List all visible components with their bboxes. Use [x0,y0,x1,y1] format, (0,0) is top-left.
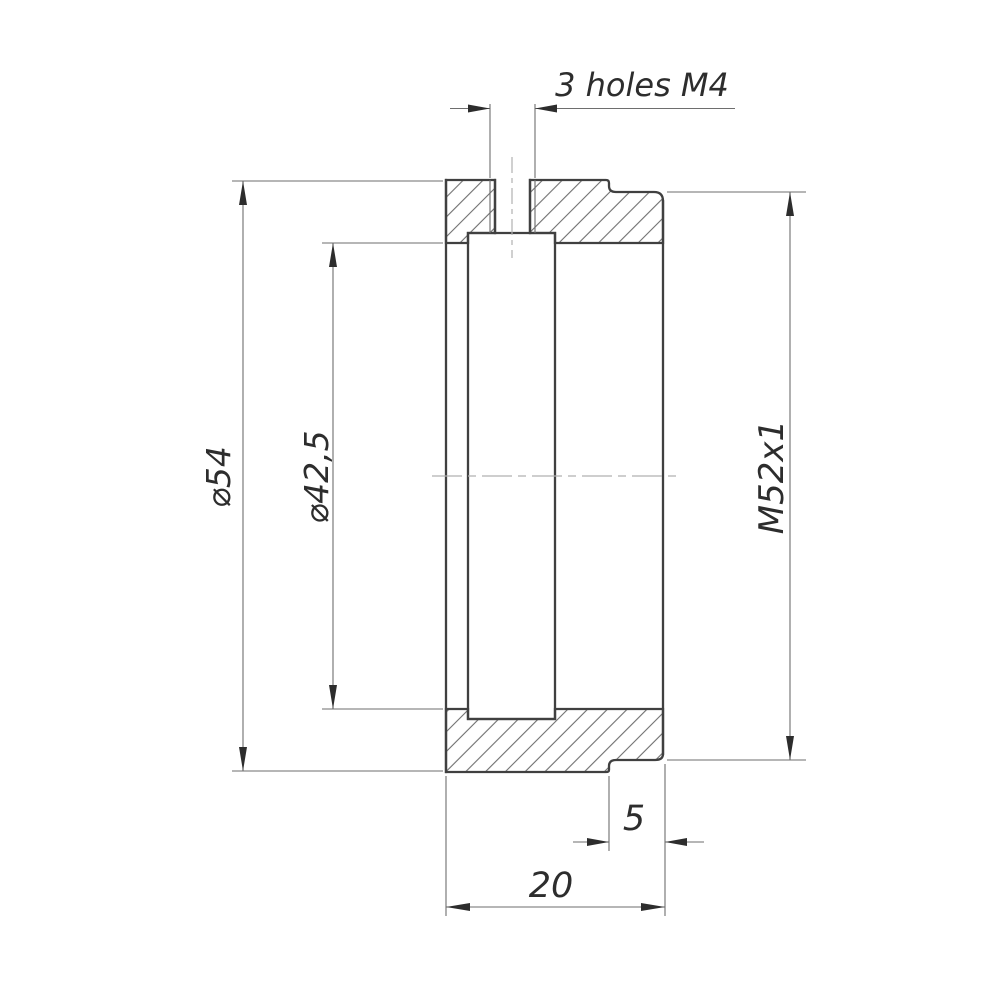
dimension-bore-diameter: ⌀42,5 [297,243,443,709]
arrowhead-left [468,105,490,113]
arrowhead-top [329,243,337,267]
drawing-sheet: 3 holes M4 ⌀54 ⌀42,5 M52x1 5 2 [0,0,1000,1000]
arrowhead-top [786,192,794,216]
dimension-overall-length: 20 [446,776,665,916]
arrowhead-bottom [239,747,247,771]
dimension-thread-m52x1: M52x1 [667,192,806,760]
arrowhead-bottom [786,736,794,760]
arrowhead-top [239,181,247,205]
arrowhead-bottom [329,685,337,709]
arrowhead-right [641,903,665,911]
extension-lines [609,764,665,916]
arrowhead-right [535,105,557,113]
dim-label-diameter-54: ⌀54 [199,446,238,508]
dim-label-m52x1: M52x1 [752,420,792,534]
dim-label-5: 5 [623,799,645,839]
arrowhead-right [665,838,687,846]
dimension-holes-m4: 3 holes M4 [450,66,735,178]
extension-lines [322,243,443,709]
extension-lines [232,181,443,771]
arrowhead-left [446,903,470,911]
arrowhead-left [587,838,609,846]
dim-label-20: 20 [529,866,574,906]
dim-label-diameter-42-5: ⌀42,5 [297,430,336,523]
dimension-thread-length: 5 [573,764,704,916]
dim-label-3-holes-m4: 3 holes M4 [555,66,729,104]
technical-drawing: 3 holes M4 ⌀54 ⌀42,5 M52x1 5 2 [0,0,1000,1000]
